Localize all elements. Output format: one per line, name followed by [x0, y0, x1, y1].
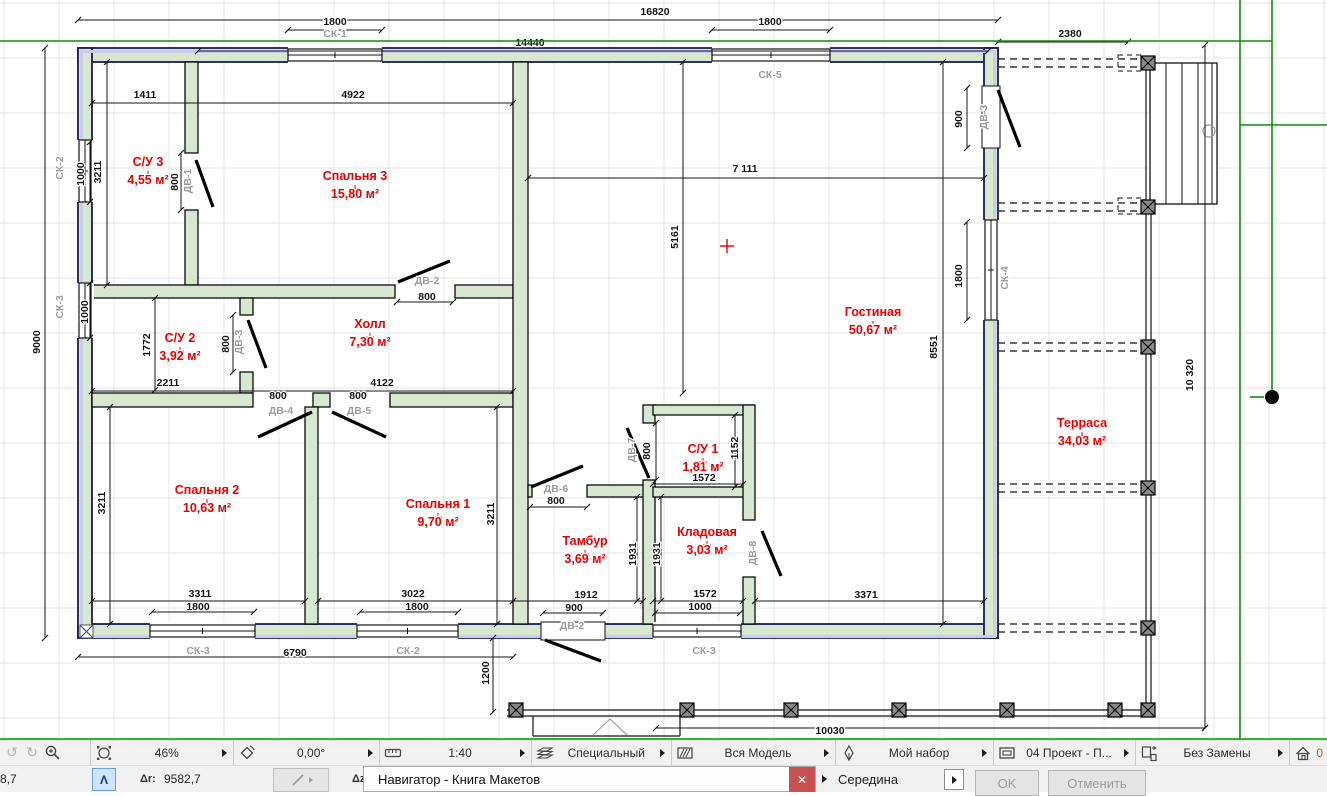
interior-wall — [313, 393, 330, 407]
dimension-text: 3371 — [854, 589, 878, 601]
door-leaf — [998, 90, 1020, 147]
room-name: Холл — [354, 317, 385, 331]
model-view-control[interactable]: Вся Модель — [672, 740, 836, 765]
dimension-text: 1800 — [186, 601, 210, 613]
snap-point-value: Середина — [838, 766, 898, 792]
snap-point-menu-button[interactable] — [944, 769, 964, 790]
stairs-direction-line — [593, 719, 610, 735]
element-tag: СК-2 — [54, 156, 66, 179]
dimension-text: 800 — [220, 335, 232, 353]
layer-menu-arrow[interactable] — [660, 749, 665, 757]
room-area: 3,92 м² — [159, 349, 200, 363]
room-area: 7,30 м² — [349, 335, 390, 349]
dimension-text: 1000 — [79, 300, 91, 324]
room-area: 50,67 м² — [849, 323, 897, 337]
scale-control[interactable]: 1:40 — [380, 740, 533, 765]
wall-insulation-band — [80, 50, 83, 636]
room-name: Спальня 3 — [323, 169, 387, 183]
terrace-dashed-rect — [1118, 55, 1144, 71]
room-name: Кладовая — [677, 525, 737, 539]
door-leaf — [545, 640, 601, 661]
room-area: 3,03 м² — [686, 543, 727, 557]
expand-arrow-icon[interactable] — [822, 766, 827, 792]
dimension-text: 1200 — [480, 661, 492, 685]
room-area: 1,81 м² — [682, 460, 723, 474]
dimension-text: 1800 — [758, 16, 782, 28]
element-tag: СК-3 — [692, 645, 715, 657]
rotation-menu-arrow[interactable] — [368, 749, 373, 757]
navigator-dialog-titlebar[interactable]: Навигатор - Книга Макетов ✕ — [363, 766, 816, 792]
interior-wall — [743, 577, 755, 624]
interior-wall — [92, 393, 253, 407]
dimension-text: 1800 — [405, 601, 429, 613]
dimension-text: 2380 — [1058, 28, 1082, 40]
dimension-text: 800 — [169, 173, 181, 191]
dimension-text: 800 — [349, 390, 367, 402]
rotation-value: 0,00° — [260, 746, 361, 760]
interior-wall — [305, 407, 318, 624]
dimension-text: 1572 — [693, 588, 717, 600]
overrides-value: Без Замены — [1162, 746, 1273, 760]
element-tag: СК-4 — [999, 266, 1011, 289]
ruler-icon — [384, 744, 402, 762]
element-tag: СК-5 — [758, 69, 781, 81]
node-point — [1265, 390, 1279, 404]
dimension-text: 800 — [269, 390, 287, 402]
layers-icon — [536, 744, 554, 762]
floor-plan: 1682023801444018001800СК-1СК-51411492232… — [0, 0, 1327, 738]
room-name: Терраса — [1057, 416, 1108, 430]
element-tag: ДВ-5 — [347, 405, 372, 417]
coordinate-readout: 8,7 — [0, 766, 17, 792]
zoom-value: 46% — [117, 746, 216, 760]
dialog-title: Навигатор - Книга Макетов — [378, 772, 540, 787]
room-area: 3,69 м² — [564, 552, 605, 566]
interior-wall — [513, 62, 528, 624]
dimension-text: 16820 — [640, 6, 669, 18]
dimension-text: 5161 — [669, 225, 681, 249]
element-tag: СК-3 — [54, 295, 66, 318]
dr-value: 9582,7 — [164, 766, 201, 792]
room-area: 15,80 м² — [331, 187, 379, 201]
dimension-text: 4122 — [370, 377, 394, 389]
room-area: 9,70 м² — [417, 515, 458, 529]
dimension-text: 1912 — [574, 589, 598, 601]
room-name: Гостиная — [845, 305, 902, 319]
interior-wall — [743, 405, 755, 520]
interior-wall — [185, 210, 198, 285]
dimension-text: 900 — [565, 602, 583, 614]
interior-wall — [653, 405, 753, 415]
element-tag: СК-3 — [186, 645, 209, 657]
dimension-text: 1931 — [651, 542, 663, 566]
layout-icon — [998, 744, 1016, 762]
dr-label: Δr: — [140, 766, 156, 792]
home-story-value: 0 — [1316, 746, 1323, 760]
dialog-close-button[interactable]: ✕ — [789, 767, 815, 792]
model-view-menu-arrow[interactable] — [824, 749, 829, 757]
pen-set-menu-arrow[interactable] — [982, 749, 987, 757]
room-name: Тамбур — [562, 534, 608, 548]
interior-wall — [240, 298, 253, 315]
layer-combination-value: Специальный — [558, 746, 654, 760]
door-leaf — [196, 160, 213, 207]
pen-set-control[interactable]: Мой набор — [836, 740, 994, 765]
dimension-text: 8551 — [928, 335, 940, 359]
dimension-text: 1772 — [141, 333, 153, 357]
home-story-control[interactable]: 0 — [1290, 740, 1327, 765]
dimension-text: 4922 — [341, 89, 365, 101]
element-tag: ДВ-7 — [626, 438, 638, 463]
dimension-text: 6790 — [283, 647, 307, 659]
dimension-text: 1411 — [134, 89, 157, 101]
room-name: С/У 3 — [133, 155, 164, 169]
dimension-text: 10030 — [815, 725, 844, 737]
interior-wall — [240, 372, 253, 393]
drawing-canvas[interactable]: 1682023801444018001800СК-1СК-51411492232… — [0, 0, 1327, 738]
model-view-value: Вся Модель — [698, 746, 818, 760]
dimension-text: 3311 — [189, 588, 212, 600]
room-area: 10,63 м² — [183, 501, 231, 515]
substitute-icon — [1140, 744, 1158, 762]
cancel-button[interactable]: Отменить — [1048, 770, 1146, 796]
ok-button[interactable]: OK — [975, 770, 1039, 796]
status-bar: 8,7 Λ Δr: 9582,7 Δz: Навигатор - Книга М… — [0, 766, 1327, 792]
rotate-view-icon — [238, 744, 256, 762]
layout-menu-arrow[interactable] — [1124, 749, 1129, 757]
home-icon — [1294, 744, 1312, 762]
dimension-text: 3211 — [485, 502, 497, 525]
angle-tool-button-disabled[interactable] — [273, 768, 329, 792]
dimension-text: 1000 — [688, 601, 712, 613]
bottom-toolbar: ↺ ↻ 46% 0,00° 1:40 Специальный Вся Модел… — [0, 740, 1327, 766]
diagonal-line-icon — [290, 772, 306, 788]
fit-view-icon — [95, 744, 113, 762]
stairs — [1150, 63, 1217, 204]
dimension-text: 7 111 — [732, 163, 757, 175]
element-tag: ДВ-4 — [269, 405, 294, 417]
element-tag: ДВ-3 — [233, 330, 245, 355]
dimension-text: 9000 — [31, 330, 43, 354]
room-name: Спальня 2 — [175, 483, 239, 497]
layout-value: 04 Проект - П... — [1020, 746, 1118, 760]
element-tag: ДВ-3 — [978, 105, 990, 130]
dimension-text: 2211 — [157, 377, 180, 389]
door-leaf — [248, 320, 266, 368]
overrides-menu-arrow[interactable] — [1278, 749, 1283, 757]
pen-set-value: Мой набор — [862, 746, 976, 760]
room-name: С/У 1 — [688, 442, 719, 456]
scale-value: 1:40 — [406, 746, 515, 760]
dimension-text: 800 — [547, 495, 565, 507]
room-area: 34,03 м² — [1058, 434, 1106, 448]
dimension-text: 3211 — [92, 160, 104, 183]
dimension-text: 1800 — [953, 264, 965, 288]
element-tag: ДВ-6 — [544, 483, 569, 495]
redo-icon[interactable]: ↻ — [24, 744, 40, 761]
dimension-text: 3022 — [401, 588, 425, 600]
undo-icon[interactable]: ↺ — [4, 744, 20, 761]
dimension-text: 14440 — [515, 37, 544, 49]
interior-wall — [653, 487, 753, 497]
dimension-text: 1000 — [75, 162, 87, 186]
element-tag: СК-2 — [396, 645, 419, 657]
orientation-control[interactable]: 0,00° — [234, 740, 379, 765]
dimension-text: 1800 — [323, 16, 347, 28]
element-tag: ДВ-1 — [182, 169, 194, 194]
stairs-direction-line — [610, 719, 627, 735]
element-tag: ДВ-2 — [415, 275, 440, 287]
terrace-dashed-rect — [1118, 198, 1144, 214]
dimension-text: 1931 — [627, 542, 639, 566]
dimension-text: 800 — [418, 291, 436, 303]
interior-wall — [185, 62, 198, 153]
zoom-in-icon[interactable] — [44, 744, 62, 762]
dimension-text: 3211 — [96, 491, 108, 514]
zoom-menu-arrow[interactable] — [222, 749, 227, 757]
dimension-text: 900 — [953, 110, 965, 128]
history-tools: ↺ ↻ — [0, 740, 91, 765]
dimension-text: 800 — [641, 442, 653, 460]
room-name: Спальня 1 — [406, 497, 470, 511]
room-area: 4,55 м² — [127, 173, 168, 187]
element-tag: СК-1 — [323, 28, 346, 40]
model-view-icon — [676, 744, 694, 762]
scale-menu-arrow[interactable] — [520, 749, 525, 757]
layout-control[interactable]: 04 Проект - П... — [994, 740, 1136, 765]
room-name: С/У 2 — [165, 331, 196, 345]
pen-icon — [840, 744, 858, 762]
interior-wall — [390, 393, 513, 407]
dimension-text: 10 320 — [1184, 359, 1196, 391]
tracker-toggle-button[interactable]: Λ — [92, 768, 116, 791]
overrides-control[interactable]: Без Замены — [1136, 740, 1291, 765]
layer-combination-control[interactable]: Специальный — [532, 740, 672, 765]
element-tag: ДВ-8 — [747, 541, 759, 566]
element-tag: ДВ-2 — [560, 620, 585, 632]
dimension-text: 1152 — [729, 436, 741, 459]
interior-wall — [455, 285, 513, 298]
zoom-control[interactable]: 46% — [91, 740, 234, 765]
interior-wall — [92, 285, 395, 298]
